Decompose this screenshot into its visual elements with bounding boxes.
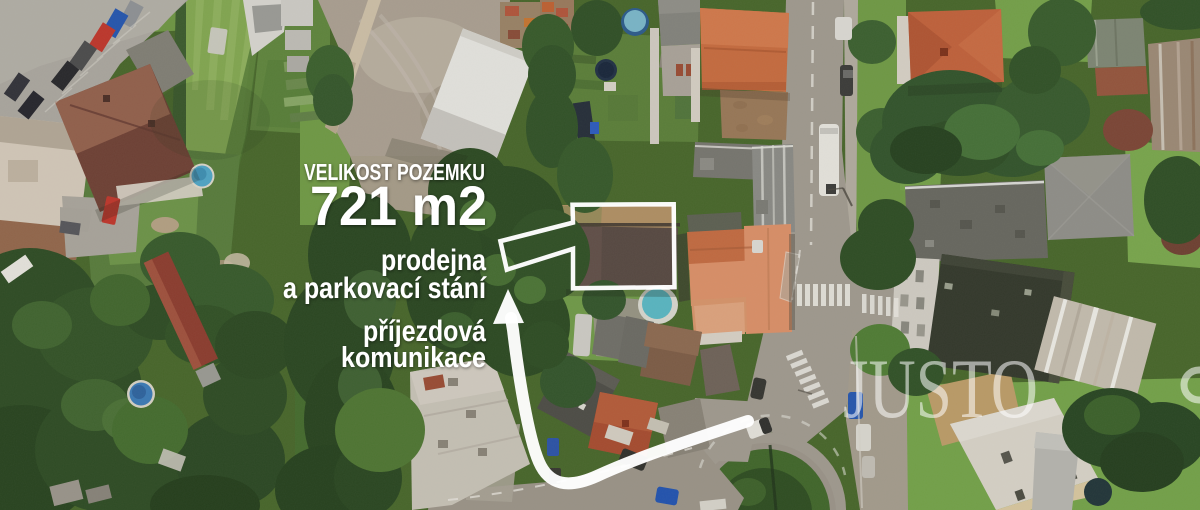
svg-text:a parkovací stání: a parkovací stání bbox=[283, 272, 487, 305]
svg-text:JUSTO: JUSTO bbox=[843, 342, 1038, 436]
svg-text:721 m2: 721 m2 bbox=[310, 174, 487, 237]
svg-text:komunikace: komunikace bbox=[341, 342, 486, 374]
